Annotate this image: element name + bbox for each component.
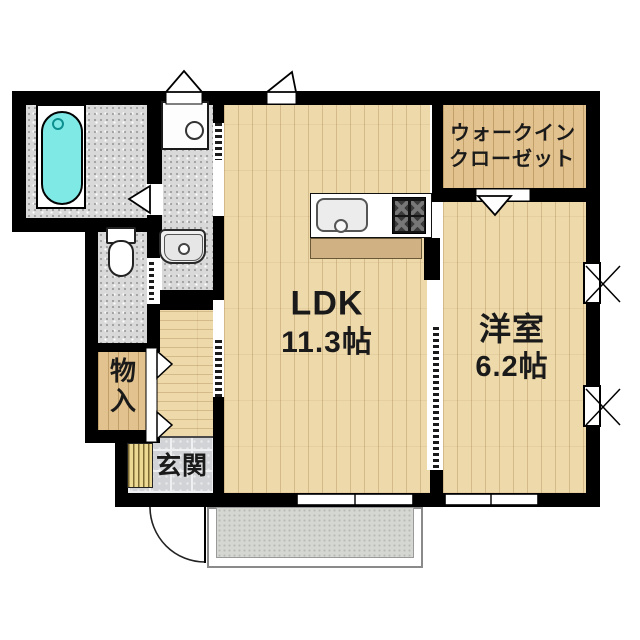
shoe-cabinet [127, 443, 153, 488]
wall [432, 91, 443, 202]
balcony-floor [216, 507, 414, 558]
wall [213, 397, 224, 493]
western-room-sliding-door [433, 327, 439, 470]
wall [213, 216, 224, 300]
storage-label: 物入 [104, 357, 141, 417]
stove-burner [411, 217, 424, 231]
toilet-sliding-door [149, 262, 154, 300]
walk-in-closet-label-line1: ウォークイン [450, 117, 576, 146]
washer-drain [185, 121, 204, 140]
toilet-bowl [108, 240, 134, 277]
entrance-door-arc [150, 507, 205, 562]
entrance-label: 玄関 [156, 446, 208, 482]
wall [12, 91, 600, 105]
washroom-sliding-door [215, 123, 222, 160]
outward-door-icon [166, 71, 202, 92]
wall [443, 188, 586, 202]
storage-door-panel [146, 348, 157, 442]
entrance-step-line [157, 436, 213, 438]
hallway-sliding-door [215, 340, 222, 397]
wall [115, 493, 600, 507]
wall [85, 225, 98, 443]
wall [424, 238, 440, 280]
western-room-area: 6.2帖 [475, 343, 548, 385]
washing-machine-pan [161, 101, 209, 150]
stove-burner [411, 201, 424, 215]
floor-plan: LDK 11.3帖 洋室 6.2帖 ウォークイン クローゼット 物入 玄関 [0, 0, 640, 640]
wall [12, 91, 26, 232]
washbasin [159, 229, 206, 264]
kitchen-faucet [334, 219, 348, 233]
walk-in-closet-label-line2: クローゼット [449, 143, 575, 172]
washbasin-faucet [178, 243, 190, 255]
wall [85, 343, 160, 352]
bathtub [36, 104, 86, 209]
wall [430, 470, 443, 493]
gas-stove [392, 197, 426, 234]
hallway-floor [157, 310, 213, 438]
ldk-area: 11.3帖 [281, 317, 373, 361]
kitchen-lower-cabinet [310, 238, 422, 259]
wall [213, 91, 224, 123]
wall [147, 91, 162, 232]
stove-burner [395, 201, 408, 215]
stove-burner [395, 217, 408, 231]
outward-door-icon [267, 72, 296, 92]
bathtub-drain [52, 118, 64, 130]
wall [586, 91, 600, 507]
